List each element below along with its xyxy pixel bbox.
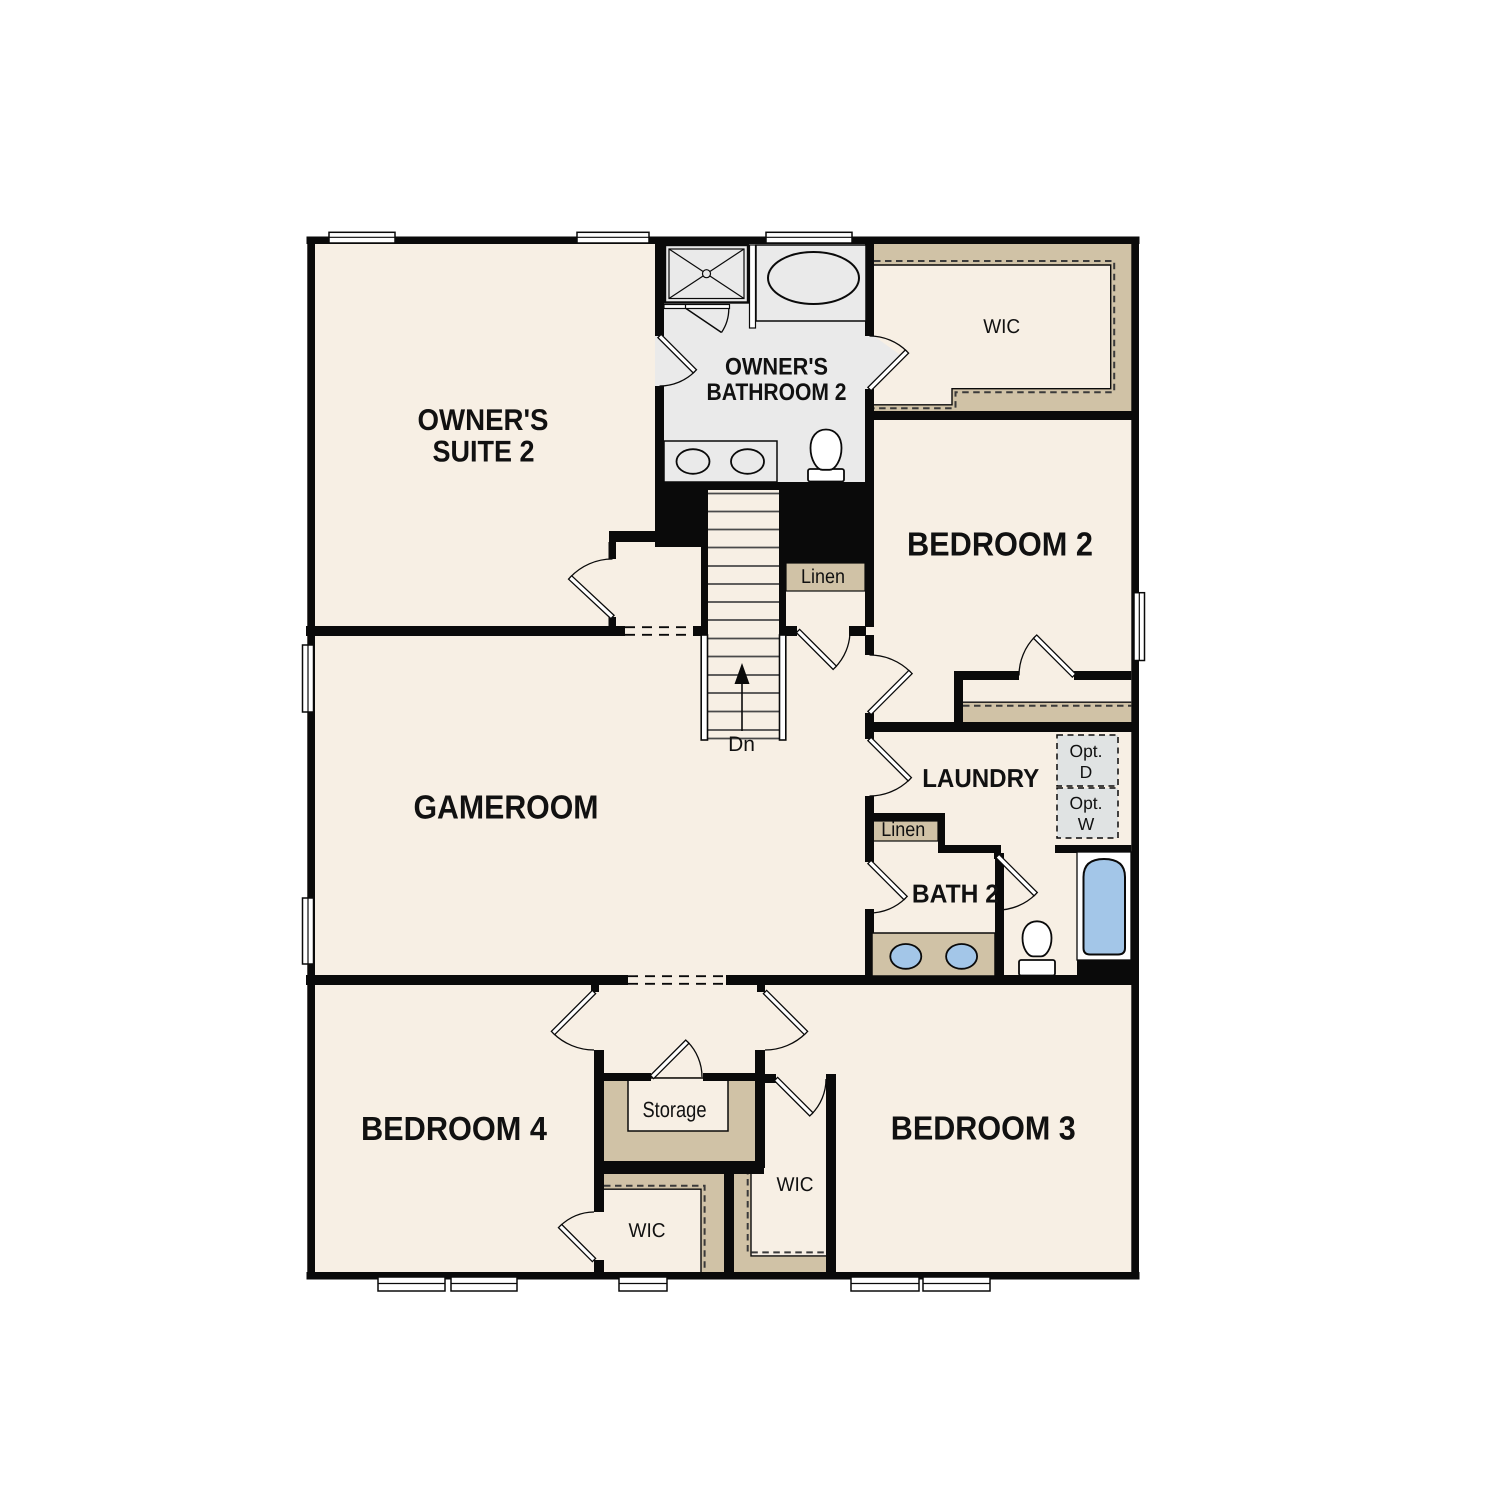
svg-text:BATH 2: BATH 2	[912, 879, 999, 909]
svg-text:BEDROOM 4: BEDROOM 4	[361, 1111, 547, 1148]
svg-text:D: D	[1080, 762, 1093, 782]
svg-text:BATHROOM 2: BATHROOM 2	[707, 379, 847, 406]
svg-text:BEDROOM 3: BEDROOM 3	[891, 1110, 1076, 1147]
svg-text:LAUNDRY: LAUNDRY	[922, 763, 1039, 793]
svg-text:GAMEROOM: GAMEROOM	[414, 790, 599, 827]
svg-text:W: W	[1078, 814, 1095, 834]
svg-text:Linen: Linen	[881, 819, 925, 841]
svg-text:Opt.: Opt.	[1070, 741, 1103, 761]
svg-text:WIC: WIC	[777, 1174, 814, 1196]
svg-text:Opt.: Opt.	[1070, 793, 1103, 813]
svg-text:OWNER'S: OWNER'S	[725, 354, 828, 381]
svg-text:WIC: WIC	[983, 316, 1020, 338]
svg-text:BEDROOM 2: BEDROOM 2	[907, 527, 1093, 564]
svg-text:Storage: Storage	[643, 1097, 707, 1122]
svg-text:OWNER'S: OWNER'S	[418, 404, 549, 437]
svg-text:WIC: WIC	[629, 1220, 666, 1242]
svg-text:SUITE 2: SUITE 2	[433, 436, 535, 469]
svg-text:Dn: Dn	[728, 733, 755, 756]
svg-text:Linen: Linen	[801, 566, 845, 588]
